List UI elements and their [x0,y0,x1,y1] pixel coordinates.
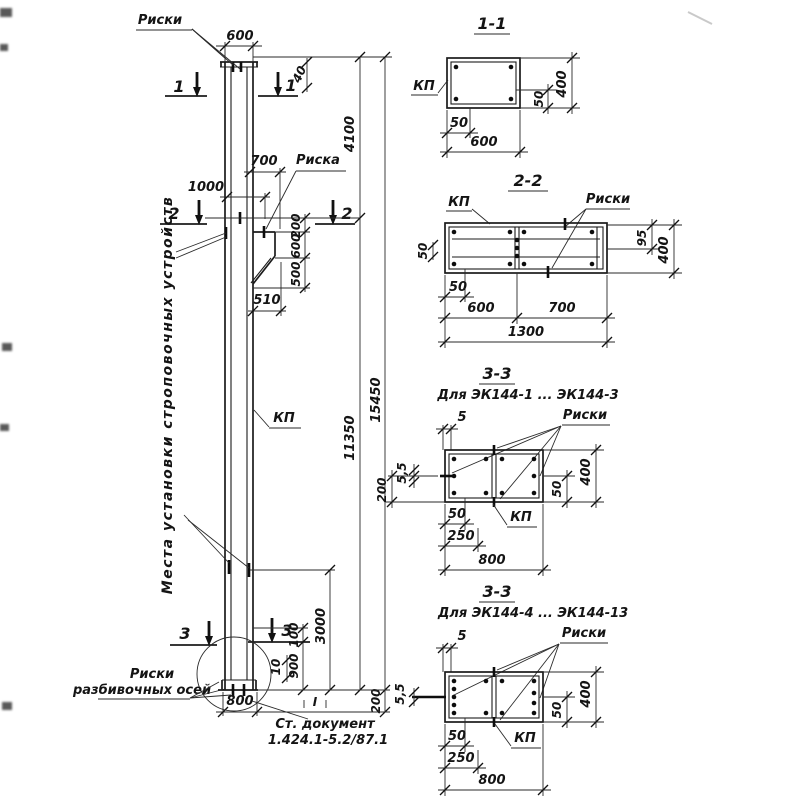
dim-top-600: 600 [226,29,253,44]
base-dimensions: 3000 100 900 10 800 [216,565,390,717]
dim-2-2-600: 600 [467,301,494,316]
dim-3-3a-250: 250 [447,529,474,544]
cut-3-left-label: 3 [179,624,190,643]
dim-2-2-50-left: 50 [416,243,430,260]
axis-note-line1: Риски [130,667,174,682]
axis-note-line2: разбивочных осей [72,683,211,698]
dim-3-3a-400: 400 [579,458,594,486]
dim-corbel-500: 500 [289,261,303,286]
doc-note: I Ст. документ 1.424.1-5.2/87.1 [252,695,388,748]
dim-corbel-600: 600 [289,233,303,258]
axis-note: Риски разбивочных осей [72,667,231,699]
section-3-3a-subtitle: Для ЭК144-1 ... ЭК144-3 [436,388,618,403]
dim-510: 510 [253,293,280,308]
elevation-view: 1 1 2 2 3 3 600 40 [72,13,392,748]
dim-15450: 15450 [369,377,384,422]
section-3-3b-subtitle: Для ЭК144-4 ... ЭК144-13 [437,606,628,621]
doc-note-line1: Ст. документ [275,717,376,732]
section-2-2-title: 2-2 [514,171,543,190]
dim-4100: 4100 [343,116,358,153]
dim-1000: 1000 [188,180,224,195]
dim-3-3a-50-bottom: 50 [448,507,466,522]
section-3-3-ek4-view: 3-3 Для ЭК144-4 ... ЭК144-13 Риски 5 5,5 [393,582,628,796]
dim-800-base: 800 [226,694,253,709]
dim-3-3b-50-bottom: 50 [448,729,466,744]
dim-1-1-600: 600 [470,135,497,150]
section-1-1-title: 1-1 [478,14,507,33]
riski-3-3b-label: Риски [562,626,606,641]
riski-top-label: Риски [138,13,182,28]
dim-1-1-50-right: 50 [532,91,546,108]
section-3-3a-title: 3-3 [483,364,512,383]
dim-3-3a-5: 5 [457,410,466,425]
section-3-3b-title: 3-3 [483,582,512,601]
dim-1-1-50-bottom: 50 [450,116,468,131]
dim-3-3b-400: 400 [579,680,594,708]
dim-2-2-50-bottom: 50 [449,280,467,295]
section-2-2-view: 2-2 КП Риски 50 50 600 700 [416,171,682,348]
dim-bottom-200: 200 [369,688,383,713]
dim-3000: 3000 [314,608,329,644]
dim-3-3a-50-right: 50 [550,481,564,498]
kp-2-2-label: КП [448,195,470,210]
dim-1-1-400: 400 [555,70,570,98]
cut-2-right-label: 2 [341,204,352,223]
dim-3-3b-5: 5 [457,629,466,644]
dim-3-3a-800: 800 [478,553,505,568]
detail-mark: I [313,695,318,709]
dim-100: 100 [287,622,301,647]
kp-3-3a-label: КП [510,510,532,525]
dim-3-3a-200: 200 [375,477,389,502]
dim-2-2-400: 400 [657,236,672,264]
riska-label: Риска [296,153,340,168]
dim-3-3b-250: 250 [447,751,474,766]
dim-3-3b-800: 800 [478,773,505,788]
corbel [226,212,275,577]
dim-700: 700 [250,154,277,169]
riski-2-2-label: Риски [586,192,630,207]
dim-2-2-1300: 1300 [508,325,544,340]
corbel-dimensions: 200 600 500 510 КП [205,213,360,428]
dim-2-2-700: 700 [548,301,575,316]
riski-3-3a-label: Риски [563,408,607,423]
section-3-3-ek1-view: 3-3 Для ЭК144-1 ... ЭК144-3 Риски 5 5,5 [375,364,619,576]
cut-1-left-label: 1 [173,77,184,96]
kp-elevation-label: КП [273,411,295,426]
dim-2-2-95: 95 [635,230,649,247]
dim-3-3b-50-right: 50 [550,702,564,719]
height-dimensions: 4100 11350 15450 200 [343,52,390,717]
kp-3-3b-label: КП [514,731,536,746]
kp-1-1-label: КП [413,79,435,94]
doc-note-line2: 1.424.1-5.2/87.1 [268,733,388,748]
dim-3-3a-5-5: 5,5 [395,462,409,483]
strop-note: Места установки строповочных устройств [160,196,249,594]
dim-3-3b-5-5: 5,5 [393,683,407,704]
scan-artifacts [0,8,712,710]
drawing-canvas: 1 1 2 2 3 3 600 40 [0,0,800,800]
dim-11350: 11350 [343,415,358,460]
strop-note-text: Места установки строповочных устройств [160,196,176,594]
section-1-1-view: 1-1 КП 50 600 50 400 [411,14,580,158]
